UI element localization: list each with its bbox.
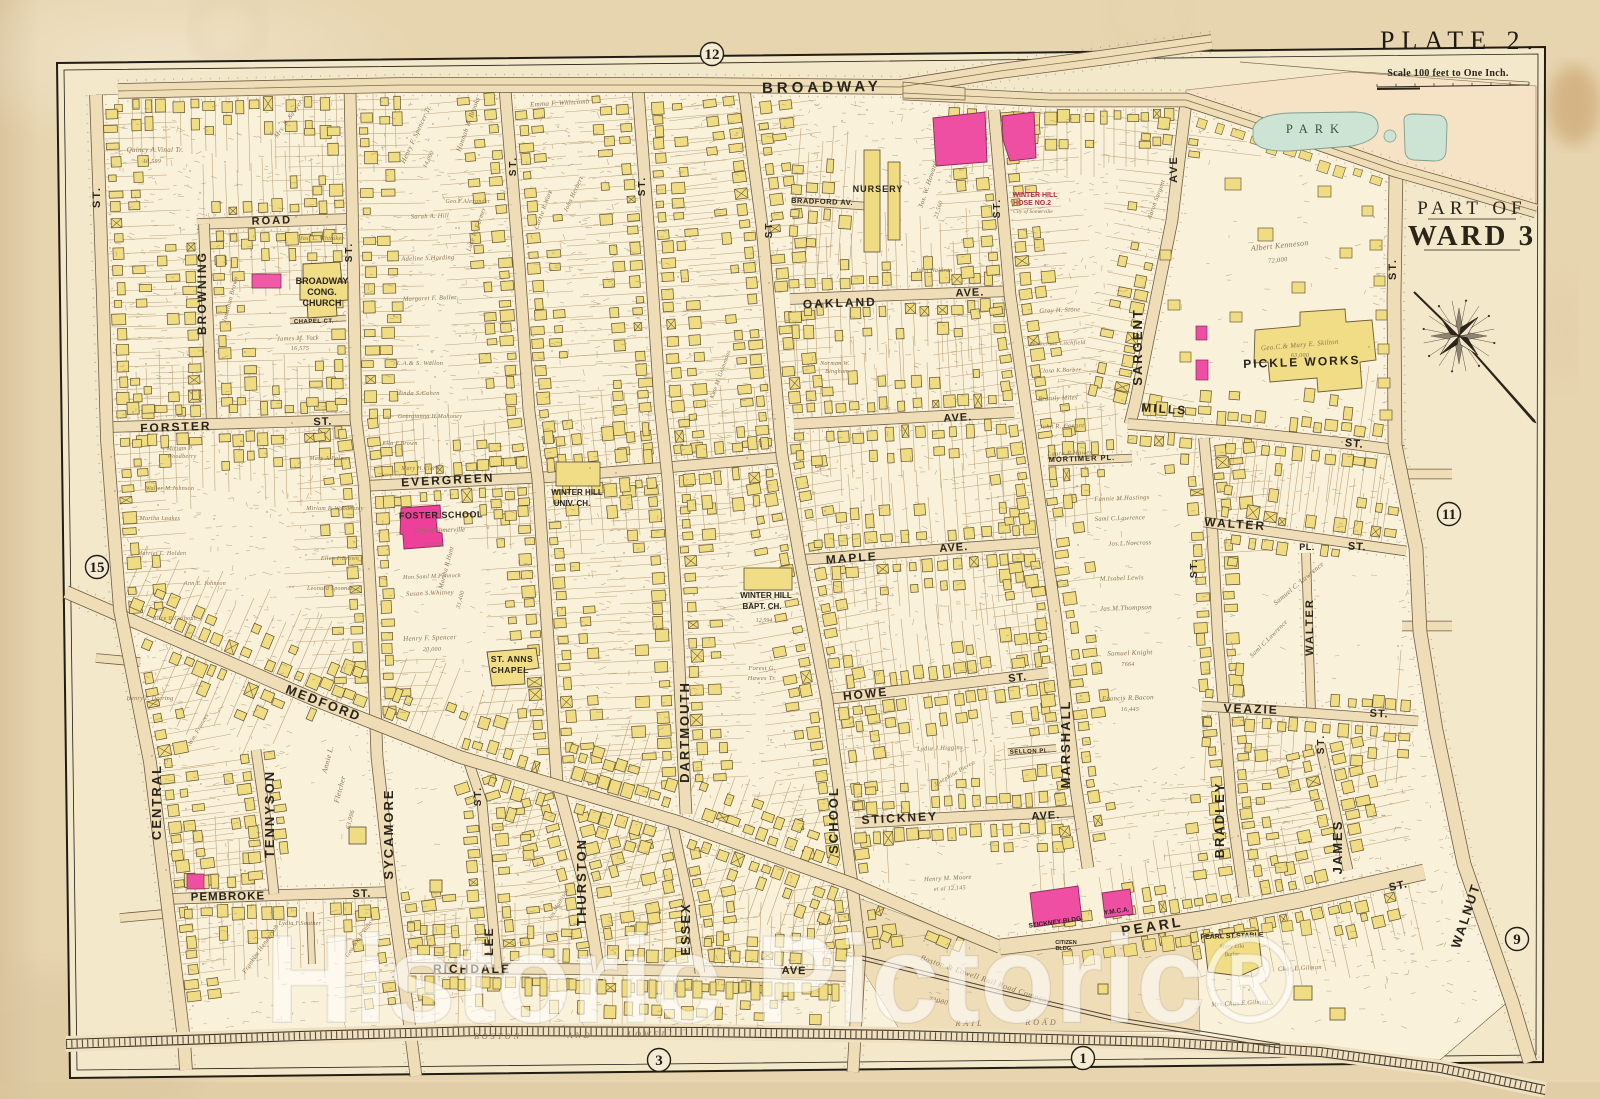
svg-text:PLATE 2.: PLATE 2.	[1380, 26, 1540, 55]
svg-text:WALTER: WALTER	[1304, 598, 1316, 656]
svg-text:CHURCH: CHURCH	[303, 298, 342, 308]
svg-text:BAPT. CH.: BAPT. CH.	[742, 602, 781, 611]
svg-text:WARD 3: WARD 3	[1408, 220, 1536, 252]
svg-text:ST.: ST.	[508, 156, 519, 176]
svg-text:ST.: ST.	[91, 186, 103, 208]
svg-text:12: 12	[705, 47, 720, 63]
svg-text:HOSE NO.2: HOSE NO.2	[1013, 200, 1051, 207]
svg-text:Ella F.Brown: Ella F.Brown	[381, 441, 417, 447]
svg-text:ST.: ST.	[1369, 708, 1388, 721]
svg-text:ST.: ST.	[1347, 540, 1367, 553]
svg-text:7664: 7664	[1121, 661, 1134, 668]
svg-text:ST.: ST.	[352, 888, 371, 900]
svg-text:9: 9	[1513, 932, 1521, 948]
svg-text:Hinda S.Cohen: Hinda S.Cohen	[395, 390, 440, 397]
svg-text:12,594: 12,594	[756, 617, 773, 624]
svg-text:16,445: 16,445	[1121, 706, 1139, 713]
svg-text:ST.: ST.	[1344, 437, 1364, 451]
svg-text:Quincy A.Vinal Tr.: Quincy A.Vinal Tr.	[127, 146, 184, 154]
svg-text:Woodberry: Woodberry	[167, 454, 196, 460]
svg-text:VEAZIE: VEAZIE	[1223, 701, 1279, 717]
svg-text:ST.: ST.	[1189, 558, 1200, 578]
svg-text:MARSHALL: MARSHALL	[1058, 700, 1073, 789]
svg-text:Scale 100 feet to One Inch.: Scale 100 feet to One Inch.	[1387, 68, 1509, 79]
svg-text:James M. York: James M. York	[277, 334, 319, 342]
svg-text:Ann E. Johnson: Ann E. Johnson	[183, 581, 226, 587]
svg-text:ROAD: ROAD	[252, 214, 293, 227]
svg-text:Alice E.Calhoun: Alice E.Calhoun	[152, 616, 197, 622]
svg-text:CHAPEL: CHAPEL	[491, 665, 529, 675]
svg-text:Historic Pictoric®: Historic Pictoric®	[265, 911, 1295, 1049]
svg-text:AVE: AVE	[1168, 155, 1180, 183]
svg-text:ST.: ST.	[344, 242, 355, 262]
svg-text:Mary A.Palmer: Mary A.Palmer	[308, 456, 350, 462]
svg-text:CENTRAL: CENTRAL	[149, 764, 164, 840]
svg-text:Brantly Miles: Brantly Miles	[1038, 394, 1078, 402]
svg-text:63,000: 63,000	[1291, 353, 1309, 359]
svg-text:Hawes Tr.: Hawes Tr.	[747, 675, 777, 682]
svg-text:BROADWAY: BROADWAY	[762, 78, 882, 97]
svg-text:Jas. L. Whitaker: Jas. L. Whitaker	[300, 236, 344, 242]
svg-text:CONG.: CONG.	[307, 287, 337, 297]
svg-text:ST. ANNS: ST. ANNS	[491, 654, 533, 664]
svg-text:PL.: PL.	[1299, 542, 1315, 552]
svg-text:Georgianna H.Mahoney: Georgianna H.Mahoney	[398, 414, 462, 420]
svg-text:Norman W.: Norman W.	[819, 361, 850, 367]
svg-text:Miriam P. Woodberry: Miriam P. Woodberry	[305, 506, 364, 512]
svg-text:JAMES: JAMES	[1330, 820, 1345, 875]
svg-text:Mary H.Clark: Mary H.Clark	[400, 466, 439, 472]
svg-text:UNIV. CH.: UNIV. CH.	[554, 499, 591, 508]
svg-text:NURSERY: NURSERY	[853, 184, 904, 194]
svg-text:BROADWAY: BROADWAY	[296, 276, 349, 286]
svg-text:Ellen F.Brown: Ellen F.Brown	[320, 556, 359, 562]
svg-text:ST.: ST.	[313, 416, 332, 429]
svg-text:10,599: 10,599	[143, 159, 161, 165]
svg-text:Harriet L. Holden: Harriet L. Holden	[137, 551, 187, 557]
svg-text:PART OF: PART OF	[1417, 198, 1526, 219]
svg-text:3: 3	[655, 1053, 663, 1069]
svg-text:Gray H. Stone: Gray H. Stone	[1039, 306, 1081, 314]
svg-text:16,575: 16,575	[291, 346, 309, 352]
svg-text:Forest G.: Forest G.	[747, 665, 775, 672]
svg-text:Miriam P.: Miriam P.	[166, 446, 194, 452]
svg-text:AVE.: AVE.	[943, 411, 972, 424]
svg-text:BRADLEY: BRADLEY	[1212, 782, 1227, 859]
svg-text:AVE.: AVE.	[955, 287, 984, 300]
svg-text:OAKLAND: OAKLAND	[803, 295, 877, 312]
svg-text:ST.: ST.	[1387, 258, 1399, 280]
svg-text:20,000: 20,000	[423, 647, 441, 653]
svg-text:AVE.: AVE.	[939, 541, 969, 555]
svg-text:SARGENT: SARGENT	[1130, 308, 1145, 386]
svg-text:BROWNING: BROWNING	[195, 251, 209, 335]
svg-text:John Waldron: John Waldron	[916, 268, 953, 274]
svg-text:AVE.: AVE.	[1031, 809, 1060, 822]
svg-text:ST.: ST.	[764, 218, 775, 238]
svg-text:FOSTER SCHOOL: FOSTER SCHOOL	[399, 509, 483, 520]
svg-text:15: 15	[90, 560, 105, 576]
svg-text:ST.: ST.	[1008, 671, 1028, 685]
svg-text:PARK: PARK	[1286, 122, 1346, 136]
svg-text:PEMBROKE: PEMBROKE	[191, 890, 266, 903]
svg-text:Geo.F.Alexander: Geo.F.Alexander	[445, 199, 490, 205]
svg-text:SYCAMORE: SYCAMORE	[381, 788, 396, 879]
svg-text:DARTMOUTH: DARTMOUTH	[677, 681, 692, 783]
svg-text:WINTER HILL: WINTER HILL	[740, 591, 792, 600]
svg-text:WINTER HILL: WINTER HILL	[1012, 192, 1058, 199]
svg-text:Henry F. Deering: Henry F. Deering	[126, 696, 174, 702]
svg-text:Walter M.Johnson: Walter M.Johnson	[146, 486, 195, 492]
svg-text:27,500: 27,500	[423, 542, 442, 549]
svg-text:WINTER HILL: WINTER HILL	[551, 488, 603, 497]
svg-text:11: 11	[1442, 507, 1456, 523]
svg-text:ST.: ST.	[637, 176, 648, 196]
svg-text:TENNYSON: TENNYSON	[262, 770, 277, 858]
svg-text:City of Somerville: City of Somerville	[415, 526, 466, 535]
svg-text:FORSTER: FORSTER	[140, 419, 212, 435]
svg-text:L.A.& S. Wallon: L.A.& S. Wallon	[396, 360, 444, 367]
svg-text:Samuel Knight: Samuel Knight	[1107, 648, 1153, 658]
svg-text:Leonard Spooner: Leonard Spooner	[306, 586, 353, 592]
svg-text:ST.: ST.	[473, 786, 484, 806]
svg-text:Sarah A. Hill: Sarah A. Hill	[411, 212, 450, 220]
svg-text:Bingham: Bingham	[825, 369, 849, 375]
svg-text:SCHOOL: SCHOOL	[826, 786, 841, 854]
svg-text:ST.: ST.	[992, 198, 1003, 218]
svg-text:1: 1	[1079, 1051, 1087, 1067]
svg-text:Martha Loakes: Martha Loakes	[139, 516, 181, 522]
svg-text:ST.: ST.	[1316, 734, 1327, 754]
svg-text:CHAPEL CT.: CHAPEL CT.	[294, 319, 334, 326]
svg-text:City of Somerville: City of Somerville	[1013, 208, 1053, 215]
